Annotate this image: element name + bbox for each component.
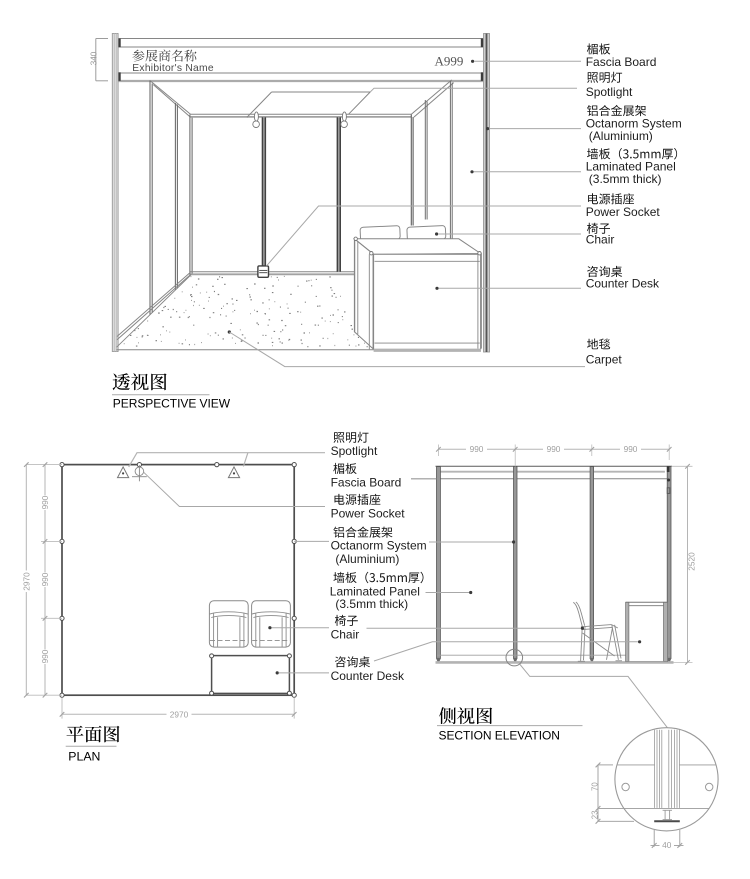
svg-text:Power Socket: Power Socket [586,205,661,219]
svg-text:23: 23 [590,811,599,820]
svg-text:(Aluminium): (Aluminium) [589,129,653,143]
svg-text:Carpet: Carpet [586,352,623,366]
svg-text:Counter Desk: Counter Desk [586,277,660,291]
svg-text:Spotlight: Spotlight [586,85,633,99]
svg-text:Fascia Board: Fascia Board [331,475,402,489]
svg-text:990: 990 [40,649,50,663]
svg-text:Fascia Board: Fascia Board [586,55,657,69]
svg-text:(3.5mm thick): (3.5mm thick) [335,597,408,611]
svg-text:990: 990 [470,444,484,454]
svg-text:2520: 2520 [687,552,697,571]
svg-text:40: 40 [662,840,672,850]
svg-text:(Aluminium): (Aluminium) [335,552,399,566]
svg-text:SECTION ELEVATION: SECTION ELEVATION [439,729,560,743]
svg-text:PERSPECTIVE VIEW: PERSPECTIVE VIEW [113,397,231,411]
svg-text:990: 990 [624,444,638,454]
svg-text:2970: 2970 [170,709,189,719]
svg-text:990: 990 [40,572,50,586]
svg-text:Octanorm System: Octanorm System [331,539,427,553]
svg-text:Counter Desk: Counter Desk [331,669,405,683]
svg-text:340: 340 [89,51,99,65]
svg-text:Spotlight: Spotlight [331,444,378,458]
svg-text:Power Socket: Power Socket [331,507,406,521]
svg-text:70: 70 [591,782,600,791]
svg-text:A999: A999 [435,53,464,68]
svg-text:Exhibitor's Name: Exhibitor's Name [132,63,214,74]
svg-text:Chair: Chair [586,233,615,247]
svg-text:990: 990 [40,495,50,509]
svg-text:Chair: Chair [331,628,360,642]
svg-text:990: 990 [547,444,561,454]
svg-text:(3.5mm thick): (3.5mm thick) [589,172,662,186]
svg-text:2970: 2970 [21,572,31,591]
svg-text:PLAN: PLAN [68,750,100,764]
